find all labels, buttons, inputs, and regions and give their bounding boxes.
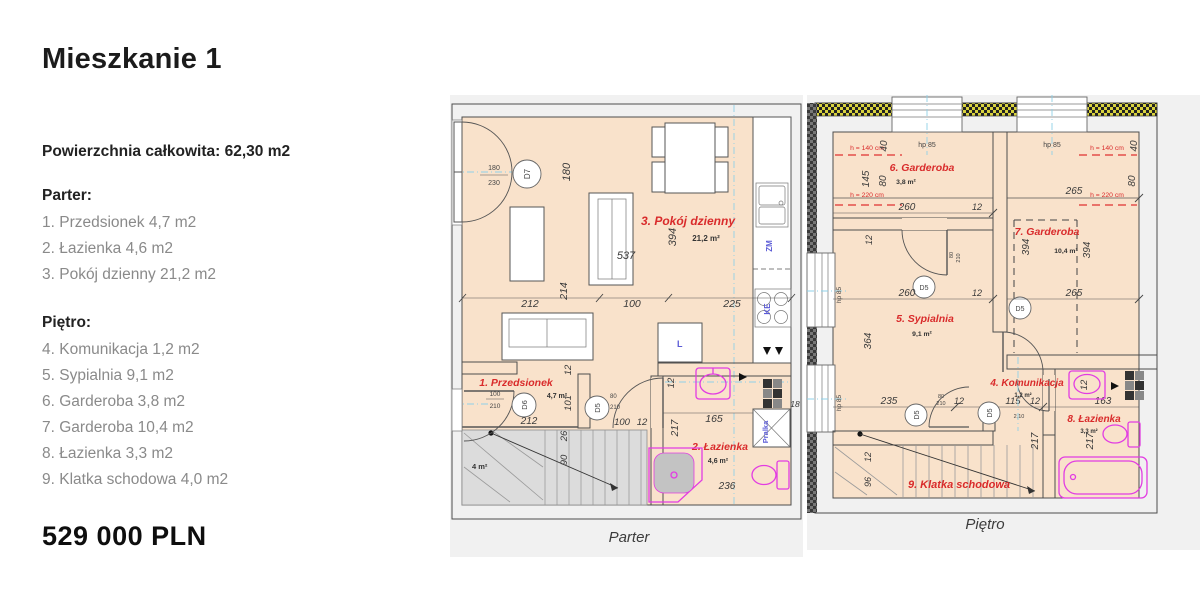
list-item: 7. Garderoba 10,4 m2 bbox=[42, 415, 442, 441]
dimension-label: 12 bbox=[863, 452, 873, 462]
dimension-label: 12 bbox=[666, 377, 677, 388]
room-label: 2. Łazienka bbox=[691, 441, 748, 453]
list-item: 4. Komunikacja 1,2 m2 bbox=[42, 337, 442, 363]
dimension-label: 12 bbox=[1079, 379, 1090, 390]
ground-floor-room-list: 1. Przedsionek 4,7 m2 2. Łazienka 4,6 m2… bbox=[42, 210, 442, 288]
dimension-label: 180 bbox=[561, 162, 573, 181]
upper-floor-heading: Piętro: bbox=[42, 314, 442, 332]
room-label: 5. Sypialnia bbox=[896, 313, 954, 325]
height-note: h = 140 cm bbox=[1090, 145, 1124, 152]
dimension-label: 80 bbox=[878, 175, 889, 187]
dimension-label: 265 bbox=[1065, 288, 1083, 299]
insulation-band bbox=[815, 103, 1157, 116]
upper-floor-room-list: 4. Komunikacja 1,2 m2 5. Sypialnia 9,1 m… bbox=[42, 337, 442, 493]
height-note: h = 220 cm bbox=[850, 192, 884, 199]
door-size-label: 100 bbox=[490, 391, 501, 398]
plan-caption: Parter bbox=[609, 529, 651, 546]
dimension-label: 217 bbox=[670, 419, 681, 437]
dimension-label: 364 bbox=[863, 332, 874, 349]
room-label: 4. Komunikacja bbox=[989, 378, 1064, 389]
list-item: 2. Łazienka 4,6 m2 bbox=[42, 236, 442, 262]
list-item: 8. Łazienka 3,3 m2 bbox=[42, 441, 442, 467]
door-tag: D5 bbox=[1016, 306, 1025, 313]
list-item: 9. Klatka schodowa 4,0 m2 bbox=[42, 467, 442, 493]
window-sill-label: hp 85 bbox=[1043, 142, 1061, 149]
window-sill-label: hp 85 bbox=[836, 394, 843, 411]
dimension-label: 217 bbox=[1085, 432, 1096, 450]
dimension-label: 260 bbox=[898, 202, 916, 213]
door-size-label: 210 bbox=[956, 253, 962, 262]
room-area: 9,1 m² bbox=[912, 331, 932, 338]
dimension-label: 12 bbox=[972, 202, 982, 212]
door-size-label: 230 bbox=[488, 180, 500, 187]
door-size-label: 210 bbox=[610, 405, 621, 411]
room-area: 4,6 m² bbox=[708, 458, 729, 465]
list-item: 3. Pokój dzienny 21,2 m2 bbox=[42, 262, 442, 288]
dimension-label: 235 bbox=[880, 396, 898, 407]
room-area: 3,8 m² bbox=[896, 179, 916, 186]
room-label: 8. Łazienka bbox=[1067, 414, 1121, 425]
room-area: 4 m² bbox=[472, 462, 488, 471]
listing-sidebar: Mieszkanie 1 Powierzchnia całkowita: 62,… bbox=[42, 44, 442, 552]
floor-plans: 180 230 D7 ZM KE bbox=[450, 95, 1200, 565]
door-size-label: 210 bbox=[490, 403, 501, 410]
chair bbox=[652, 127, 665, 157]
room-label: 6. Garderoba bbox=[890, 162, 955, 174]
dimension-label: 96 bbox=[863, 477, 873, 487]
sink-label: ZM bbox=[765, 240, 774, 252]
door-size-label: 180 bbox=[488, 165, 500, 172]
washer-label: Pralka bbox=[761, 420, 770, 443]
floor-plan-parter[interactable]: 180 230 D7 ZM KE bbox=[450, 95, 803, 557]
chair bbox=[652, 162, 665, 192]
window-sill-label: hp 85 bbox=[836, 286, 843, 303]
dimension-label: 260 bbox=[898, 288, 916, 299]
dimension-label: 145 bbox=[861, 170, 872, 187]
door-tag: D5 bbox=[987, 408, 994, 417]
tv-cabinet bbox=[510, 207, 544, 281]
dimension-label: 12 bbox=[563, 364, 574, 375]
room-area: 10,4 m² bbox=[1054, 248, 1078, 255]
room-label: 1. Przedsionek bbox=[479, 377, 554, 389]
dimension-label: 214 bbox=[558, 282, 570, 301]
page-title: Mieszkanie 1 bbox=[42, 44, 442, 76]
door-tag: D5 bbox=[593, 403, 602, 413]
list-item: 1. Przedsionek 4,7 m2 bbox=[42, 210, 442, 236]
fridge-label: L bbox=[677, 339, 683, 349]
dimension-label: 265 bbox=[1065, 186, 1083, 197]
dimension-label: 163 bbox=[1095, 396, 1112, 407]
door-tag: D6 bbox=[520, 400, 529, 410]
washing-machine bbox=[753, 409, 790, 447]
chair bbox=[715, 162, 728, 192]
total-area: Powierzchnia całkowita: 62,30 m2 bbox=[42, 143, 442, 161]
chair bbox=[715, 127, 728, 157]
dimension-label: 100 bbox=[614, 417, 631, 428]
dimension-label: 394 bbox=[667, 228, 679, 246]
dimension-label: 80 bbox=[1127, 175, 1138, 187]
door-tag: D5 bbox=[920, 285, 929, 292]
dimension-label: 12 bbox=[637, 417, 648, 428]
dimension-label: 12 bbox=[972, 288, 982, 298]
dimension-label: 90 bbox=[559, 454, 570, 465]
dimension-label: 217 bbox=[1030, 432, 1041, 450]
dimension-label: 40 bbox=[879, 140, 890, 152]
dining-table bbox=[665, 123, 715, 193]
door-tag: D7 bbox=[523, 168, 532, 179]
room-label: 9. Klatka schodowa bbox=[908, 479, 1010, 491]
dimension-label: 100 bbox=[623, 298, 641, 310]
door-size-label: 80 bbox=[949, 252, 955, 258]
dimension-label: 165 bbox=[705, 413, 723, 425]
dimension-label: 26 bbox=[559, 430, 570, 442]
sofa bbox=[589, 193, 633, 285]
dimension-label: 236 bbox=[718, 481, 736, 492]
hob-label: KE bbox=[763, 303, 772, 315]
dimension-label: 225 bbox=[722, 298, 741, 310]
room-label: 7. Garderoba bbox=[1015, 226, 1080, 238]
list-item: 5. Sypialnia 9,1 m2 bbox=[42, 363, 442, 389]
height-note: h = 220 cm bbox=[1090, 192, 1124, 199]
kitchen-counter bbox=[753, 117, 791, 363]
dimension-label: 12 bbox=[954, 396, 964, 406]
dimension-label: 101 bbox=[563, 395, 574, 411]
dimension-label: 212 bbox=[520, 298, 539, 310]
ground-floor-heading: Parter: bbox=[42, 187, 442, 205]
dimension-label: 40 bbox=[1129, 140, 1140, 152]
dimension-label: 212 bbox=[520, 416, 538, 427]
dimension-label: 394 bbox=[1021, 238, 1032, 255]
window-sill-label: hp 85 bbox=[918, 142, 936, 149]
dimension-label: 537 bbox=[617, 250, 636, 262]
room-label: 3. Pokój dzienny bbox=[641, 214, 736, 228]
dimension-label: 12 bbox=[864, 235, 874, 245]
stairs-parter bbox=[462, 430, 647, 505]
floor-plan-image[interactable]: 180 230 D7 ZM KE bbox=[450, 95, 1200, 560]
door-size-label: 80 bbox=[610, 394, 617, 400]
price-label: 529 000 PLN bbox=[42, 521, 442, 552]
door-size-label: 2,10 bbox=[1014, 414, 1025, 420]
entrance-door bbox=[452, 389, 462, 431]
door-tag: D5 bbox=[914, 410, 921, 419]
room-area: 1,2 m² bbox=[1014, 392, 1031, 399]
room-area: 21,2 m² bbox=[692, 234, 720, 243]
dimension-label: 394 bbox=[1082, 241, 1093, 258]
list-item: 6. Garderoba 3,8 m2 bbox=[42, 389, 442, 415]
sofa-2 bbox=[502, 313, 593, 360]
plan-caption: Piętro bbox=[965, 516, 1004, 533]
dimension-label: 18 bbox=[790, 399, 800, 409]
floor-plan-pietro[interactable]: hp 85 hp 85 hp 85 hp 85 h = 1 bbox=[807, 95, 1200, 550]
